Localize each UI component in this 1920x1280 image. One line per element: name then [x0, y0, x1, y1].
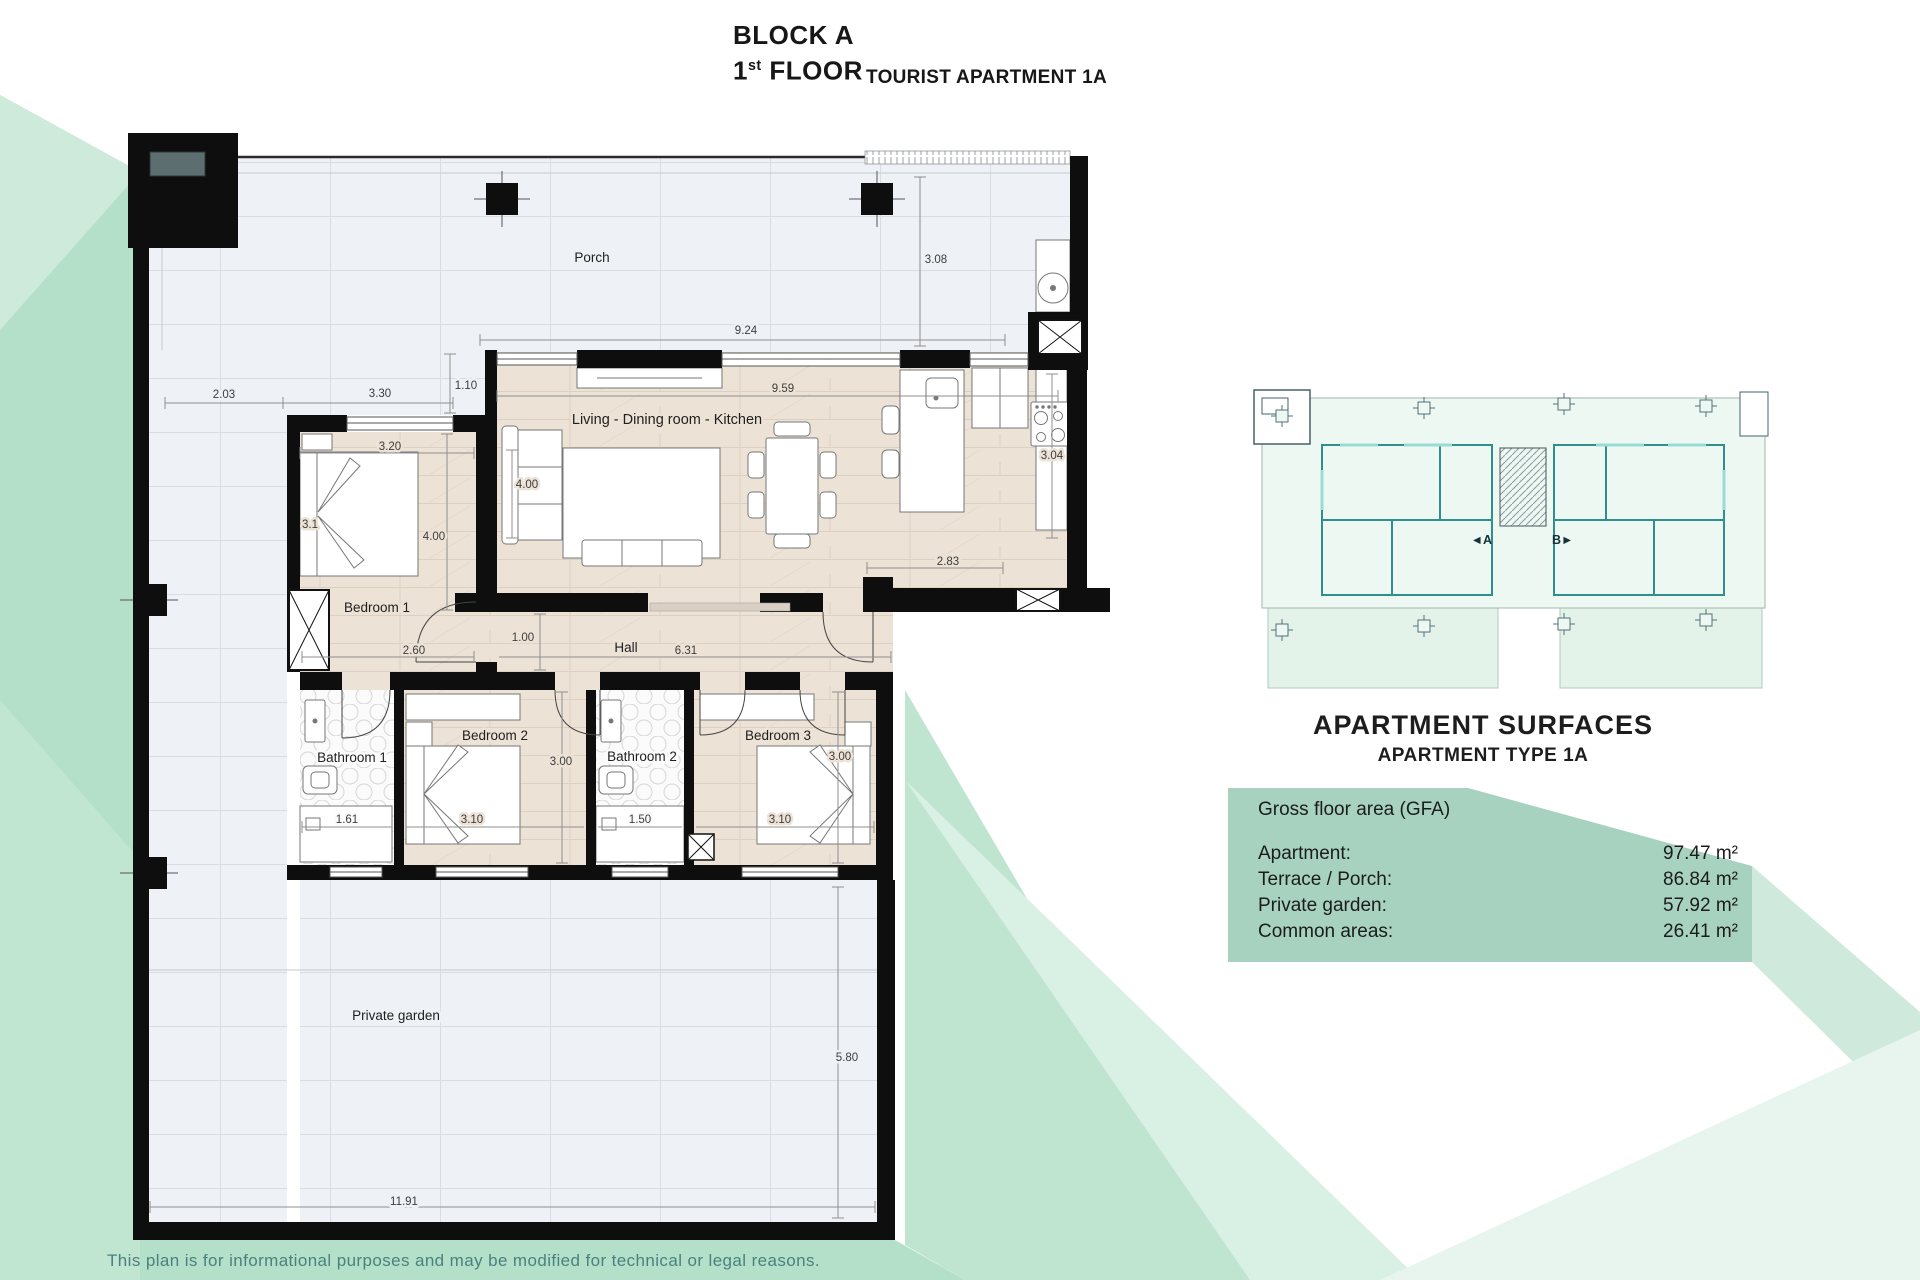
entry-block [128, 133, 238, 248]
dim-4-00-bedroom1: 4.00 [423, 531, 445, 543]
surfaces-heading-block: APARTMENT SURFACES APARTMENT TYPE 1A [1233, 710, 1733, 767]
row-value: 97.47 m² [1663, 841, 1738, 867]
plan-canvas: Porch Living - Dining room - Kitchen Bed… [0, 0, 1920, 1280]
garden-floor [300, 880, 877, 1222]
dim-9-59: 9.59 [772, 383, 794, 395]
room-label-bedroom2: Bedroom 2 [462, 728, 528, 743]
living-top-wall-b [900, 350, 970, 368]
dim-3-1: 3.1 [302, 519, 318, 531]
bedroom1-furniture [300, 434, 418, 576]
dim-11-91: 11.91 [390, 1196, 418, 1208]
bedroom1-right-wall [476, 432, 497, 602]
title-block: BLOCK A 1st FLOOR [733, 20, 863, 87]
overview-unit-b-label: B► [1552, 533, 1573, 547]
dim-9-24: 9.24 [735, 325, 758, 337]
overview-plan: ◄A B► [1254, 390, 1768, 688]
row-value: 57.92 m² [1663, 893, 1738, 919]
dim-1-61: 1.61 [336, 814, 358, 826]
kitchen-right-wall [1067, 370, 1087, 592]
garden-bottom-wall [133, 1222, 895, 1240]
living-top-wall-a [577, 350, 722, 368]
dim-1-00: 1.00 [512, 632, 534, 644]
dim-1-50: 1.50 [629, 814, 651, 826]
table-row: Terrace / Porch: 86.84 m² [1258, 867, 1738, 893]
row-label: Apartment: [1258, 841, 1351, 867]
overview-unit-a-label: ◄A [1471, 533, 1492, 547]
overview-garden-a [1268, 608, 1498, 688]
hall-wall-seg2 [390, 672, 555, 690]
row-label: Private garden: [1258, 893, 1387, 919]
table-row: Apartment: 97.47 m² [1258, 841, 1738, 867]
porch-right-wall [1070, 156, 1088, 312]
title-line-block: BLOCK A [733, 20, 863, 51]
overview-right-tab [1740, 392, 1768, 436]
dim-3-00-bedroom2: 3.00 [550, 756, 572, 768]
table-row: Common areas: 26.41 m² [1258, 919, 1738, 945]
dim-2-60: 2.60 [403, 645, 425, 657]
dim-1-10: 1.10 [455, 380, 477, 392]
room-label-bathroom1: Bathroom 1 [317, 750, 387, 765]
title-line-floor: 1st FLOOR [733, 51, 863, 87]
partition-b1-b2 [394, 690, 404, 865]
dim-3-08: 3.08 [925, 254, 947, 266]
room-label-living: Living - Dining room - Kitchen [572, 412, 762, 428]
gfa-section-label: Gross floor area (GFA) [1258, 799, 1450, 821]
dim-2-03: 2.03 [213, 389, 235, 401]
room-label-bedroom3: Bedroom 3 [745, 728, 811, 743]
surfaces-heading: APARTMENT SURFACES [1233, 710, 1733, 741]
surfaces-subheading: APARTMENT TYPE 1A [1233, 745, 1733, 767]
dim-3-20: 3.20 [379, 441, 401, 453]
dim-3-10-bedroom2: 3.10 [461, 814, 483, 826]
table-row: Private garden: 57.92 m² [1258, 893, 1738, 919]
row-label: Terrace / Porch: [1258, 867, 1392, 893]
garden-right-wall [877, 880, 895, 1240]
porch-furniture [1036, 240, 1070, 312]
dim-3-00-bedroom3: 3.00 [829, 751, 851, 763]
row-value: 26.41 m² [1663, 919, 1738, 945]
row-value: 86.84 m² [1663, 867, 1738, 893]
disclaimer-text: This plan is for informational purposes … [107, 1251, 820, 1271]
living-hall-threshold [650, 603, 790, 611]
hall-wall-seg3 [600, 672, 700, 690]
side-terrace-floor [148, 352, 287, 1222]
hall-wall-seg1 [300, 672, 342, 690]
left-outer-wall [133, 133, 149, 1240]
room-label-bedroom1: Bedroom 1 [344, 600, 410, 615]
room-label-hall: Hall [614, 640, 637, 655]
dim-3-30: 3.30 [369, 388, 391, 400]
room-label-private-garden: Private garden [352, 1008, 440, 1023]
bedroom3-right-wall [876, 690, 893, 880]
apartment-subtitle: TOURIST APARTMENT 1A [866, 67, 1107, 89]
hall-wall-seg4 [745, 672, 800, 690]
surfaces-table: Apartment: 97.47 m² Terrace / Porch: 86.… [1258, 841, 1738, 945]
living-left-wall [485, 350, 497, 432]
bedroom1-right-stub [476, 662, 497, 672]
living-bottom-right-wall [893, 588, 1110, 612]
dim-3-04: 3.04 [1041, 450, 1064, 462]
row-label: Common areas: [1258, 919, 1393, 945]
pergola-hatch-strip [865, 151, 1070, 164]
bottom-right-accent [1380, 1030, 1920, 1280]
room-label-porch: Porch [574, 250, 609, 265]
hall-wall-seg5 [845, 672, 893, 690]
dim-2-83: 2.83 [937, 556, 959, 568]
dim-5-80: 5.80 [836, 1052, 858, 1064]
overview-stair-core [1500, 448, 1546, 526]
overview-garden-b [1560, 608, 1762, 688]
entry-vent [150, 152, 205, 176]
dim-3-10-bedroom3: 3.10 [769, 814, 791, 826]
hall-corner-block [863, 577, 893, 612]
room-label-bathroom2: Bathroom 2 [607, 749, 677, 764]
dim-6-31: 6.31 [675, 645, 697, 657]
dim-4-00-living: 4.00 [516, 479, 538, 491]
partition-b2-bath2 [586, 690, 596, 865]
